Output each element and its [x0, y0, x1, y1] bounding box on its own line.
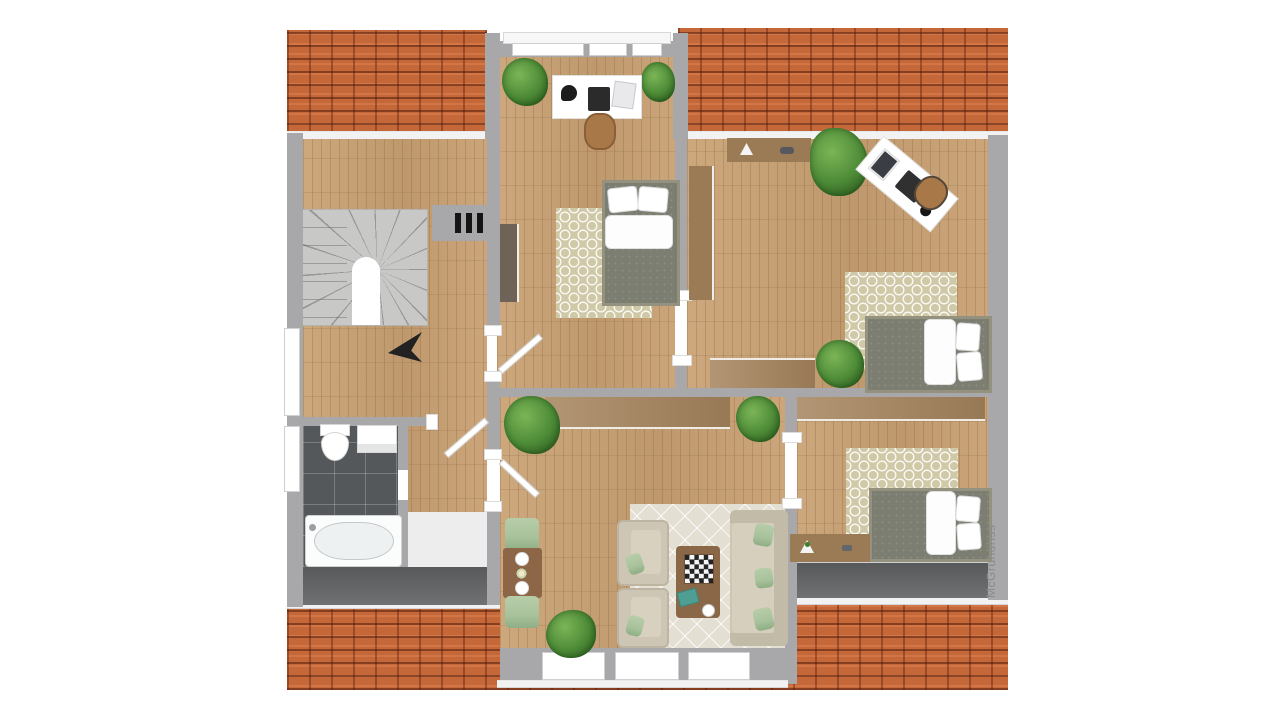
living-window-3 [688, 652, 750, 680]
bathtub-faucet [309, 524, 316, 531]
bedroom-right-bed [865, 316, 992, 393]
dormer-wall-right [673, 33, 688, 139]
decor-plant-dot [805, 542, 810, 547]
bathtub-basin [314, 522, 394, 560]
bedroom-right-door-opening [675, 298, 687, 356]
bed-pillow [955, 495, 981, 523]
radiator [455, 213, 484, 233]
wall-hall-living [487, 503, 500, 605]
desk-lamp [561, 85, 577, 101]
armchair-1 [617, 520, 669, 586]
bedroom3-bed [869, 488, 992, 562]
bedroom-top-window-1 [512, 43, 584, 56]
stairwell-opening [352, 257, 380, 325]
bed-pillow [607, 186, 639, 214]
bed-blanket [605, 215, 673, 249]
dining-centerpiece [514, 566, 529, 581]
living-plant-top-left [504, 396, 560, 454]
wall-hall-mid [487, 373, 500, 457]
washbasin [357, 425, 397, 453]
living-plant-top-right [736, 396, 780, 442]
door-post-2 [672, 355, 692, 366]
sofa [730, 510, 788, 646]
bedroom-top-window-3 [632, 43, 662, 56]
living-plant-bottom [546, 610, 596, 658]
living-sideboard [545, 397, 730, 429]
left-wall-window-1 [284, 328, 300, 416]
bedroom-right-lowboard [710, 358, 815, 388]
bedroom-right-wardrobe [689, 166, 714, 300]
desk-papers [611, 81, 636, 110]
desk-chair [584, 113, 616, 150]
dining-chair-top [505, 518, 539, 550]
bedroom-top-plant-left [502, 58, 548, 106]
bathroom-wall-post [426, 414, 438, 430]
door-post-6 [484, 371, 502, 382]
armchair-2 [617, 588, 669, 648]
watermark: McGrundriss [984, 464, 1004, 598]
door-post-8 [484, 501, 502, 512]
door-post-5 [484, 325, 502, 336]
bed-pillow [637, 186, 669, 214]
sofa-backrest [774, 521, 788, 635]
bathroom-door-opening [398, 470, 408, 500]
coffee-table-book [676, 588, 699, 608]
door-post-3 [782, 432, 802, 443]
bathtub [305, 515, 402, 567]
dining-plate-2 [515, 581, 529, 595]
coffee-table-cup [702, 604, 715, 617]
bedroom-top-plant-right [641, 62, 675, 102]
left-wall-window-2 [284, 426, 300, 492]
bathroom-right-wall-upper [398, 426, 408, 470]
bedroom-top-bed [602, 180, 680, 306]
balcony-right [797, 563, 988, 598]
decor-toy-car [780, 147, 794, 154]
bedroom3-desk [790, 534, 870, 562]
door-post-7 [484, 449, 502, 460]
roof-top-right [678, 28, 1008, 138]
decor-small-object [842, 545, 852, 551]
bedroom3-door-opening [785, 440, 797, 500]
floor-plan: McGrundriss [0, 0, 1279, 719]
bedroom-top-window-2 [589, 43, 627, 56]
door-post-4 [782, 498, 802, 509]
wall-hall-bedroom-top [487, 139, 500, 333]
roof-bottom-right [793, 602, 1008, 690]
bed-blanket [924, 319, 956, 385]
decor-triangle-frame [740, 143, 753, 155]
bed-pillow [956, 522, 982, 551]
living-dormer-fascia [497, 680, 788, 688]
chessboard [684, 554, 714, 584]
balcony-left [303, 567, 487, 605]
dining-chair-bottom [505, 596, 539, 628]
sofa-cushion [754, 567, 774, 589]
bed-pillow [955, 322, 981, 352]
staircase-straight-steps [303, 210, 347, 325]
sofa-cushion [752, 523, 775, 548]
coffee-table [676, 546, 720, 618]
bedroom-right-plant-small [816, 340, 864, 388]
living-window-2 [615, 652, 679, 680]
bed-pillow [956, 351, 983, 382]
bedroom3-sideboard [797, 397, 985, 421]
dining-plate-1 [515, 552, 529, 566]
roof-top-left [287, 30, 487, 138]
bedroom-top-wardrobe [500, 224, 519, 302]
bed-blanket [926, 491, 956, 555]
desk-monitor [588, 87, 610, 111]
bedroom-right-sideboard [727, 138, 811, 162]
bathroom-shower-area [408, 512, 487, 567]
desk-magazine [868, 148, 900, 181]
